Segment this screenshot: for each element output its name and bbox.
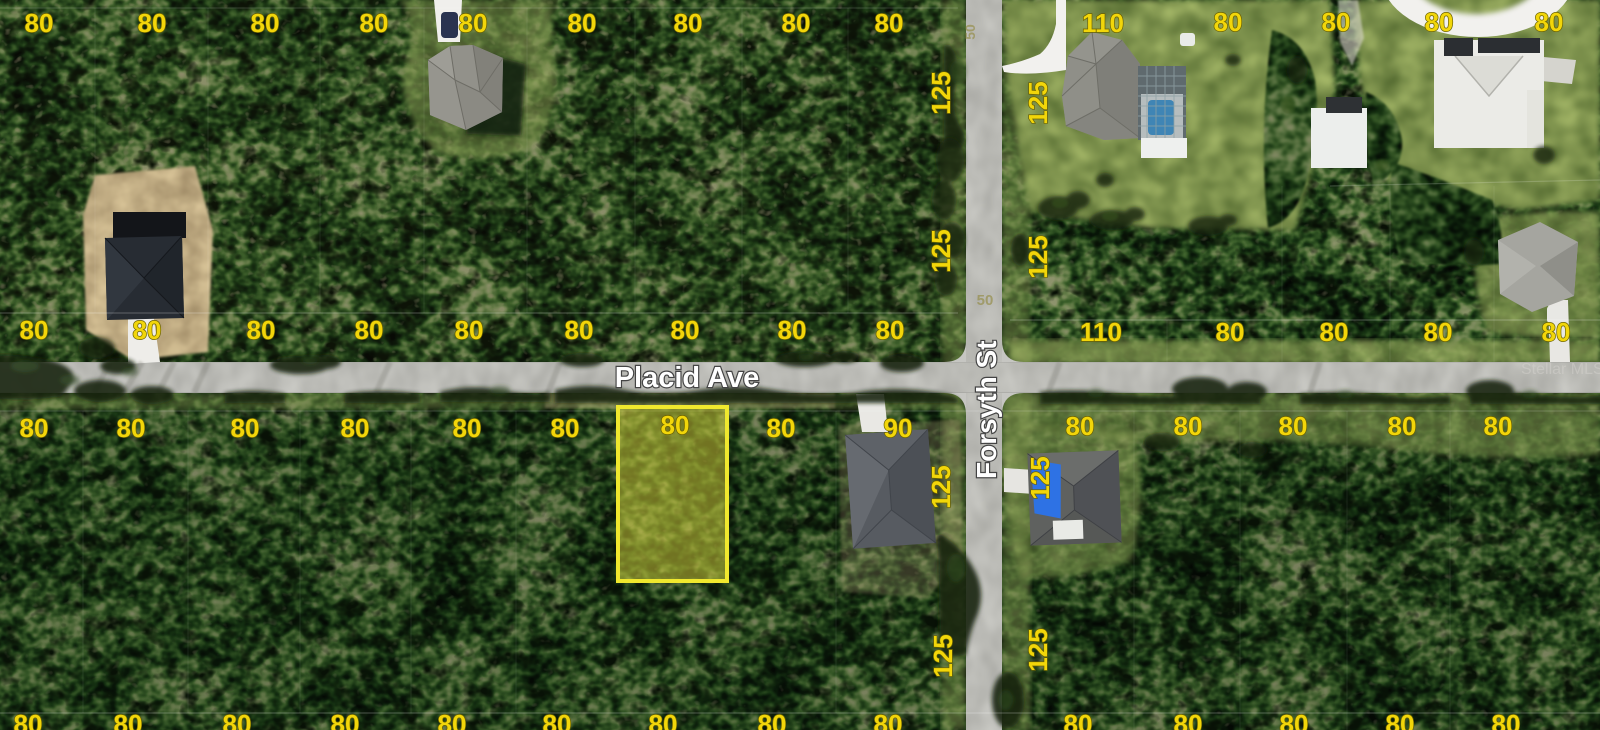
svg-text:80: 80 [875,8,904,38]
svg-text:80: 80 [1424,317,1453,347]
svg-text:80: 80 [331,709,360,730]
svg-text:80: 80 [568,8,597,38]
svg-text:80: 80 [14,709,43,730]
svg-text:80: 80 [1484,411,1513,441]
svg-text:80: 80 [360,8,389,38]
svg-text:125: 125 [1023,81,1053,124]
svg-text:110: 110 [1080,317,1122,347]
svg-text:125: 125 [926,465,956,508]
svg-text:125: 125 [926,229,956,272]
svg-text:80: 80 [767,413,796,443]
svg-text:80: 80 [231,413,260,443]
svg-text:80: 80 [1542,317,1571,347]
svg-text:80: 80 [20,315,49,345]
svg-text:80: 80 [565,315,594,345]
svg-text:80: 80 [1214,7,1243,37]
svg-text:80: 80 [1279,411,1308,441]
svg-text:80: 80 [223,709,252,730]
svg-text:80: 80 [649,709,678,730]
svg-text:80: 80 [1064,709,1093,730]
svg-text:80: 80 [455,315,484,345]
svg-text:80: 80 [453,413,482,443]
svg-text:80: 80 [438,709,467,730]
svg-text:80: 80 [1492,709,1521,730]
svg-text:80: 80 [133,315,162,345]
svg-text:80: 80 [1066,411,1095,441]
svg-text:50: 50 [962,24,978,40]
svg-text:80: 80 [1386,709,1415,730]
svg-text:80: 80 [459,8,488,38]
svg-text:Stellar MLS: Stellar MLS [1521,361,1600,378]
svg-text:80: 80 [1280,709,1309,730]
svg-text:80: 80 [251,8,280,38]
svg-text:80: 80 [1174,709,1203,730]
svg-text:80: 80 [758,709,787,730]
svg-text:80: 80 [138,8,167,38]
svg-text:125: 125 [1025,456,1055,499]
svg-text:80: 80 [1216,317,1245,347]
svg-text:80: 80 [671,315,700,345]
svg-text:80: 80 [355,315,384,345]
svg-text:80: 80 [25,8,54,38]
svg-text:80: 80 [1535,7,1564,37]
svg-text:125: 125 [1023,628,1053,671]
svg-text:80: 80 [1425,7,1454,37]
svg-text:80: 80 [674,8,703,38]
svg-text:90: 90 [884,413,913,443]
svg-text:125: 125 [928,634,958,677]
svg-text:80: 80 [1388,411,1417,441]
svg-text:80: 80 [876,315,905,345]
svg-text:80: 80 [117,413,146,443]
svg-text:125: 125 [1023,235,1053,278]
svg-text:50: 50 [977,292,994,309]
svg-text:80: 80 [20,413,49,443]
svg-text:80: 80 [1320,317,1349,347]
svg-text:80: 80 [782,8,811,38]
svg-text:Placid Ave: Placid Ave [615,362,760,394]
svg-text:80: 80 [247,315,276,345]
svg-text:125: 125 [926,71,956,114]
svg-text:80: 80 [874,709,903,730]
svg-text:110: 110 [1082,8,1124,38]
svg-text:80: 80 [543,709,572,730]
svg-text:80: 80 [341,413,370,443]
svg-text:80: 80 [778,315,807,345]
svg-text:80: 80 [1322,7,1351,37]
svg-text:80: 80 [114,709,143,730]
svg-text:80: 80 [551,413,580,443]
svg-text:80: 80 [661,410,690,440]
svg-text:80: 80 [1174,411,1203,441]
svg-text:Forsyth St: Forsyth St [971,341,1002,479]
